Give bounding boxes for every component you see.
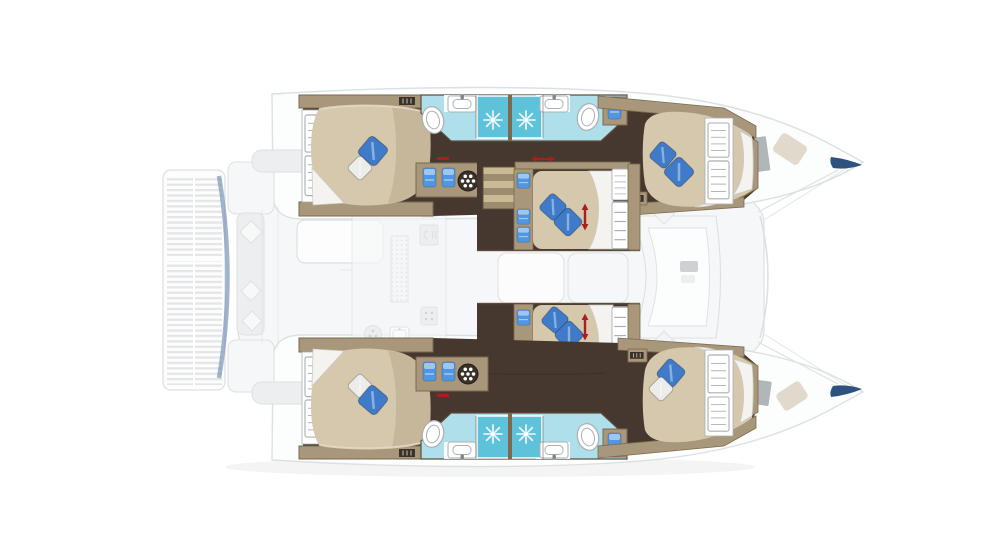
saloon-seat <box>498 253 564 303</box>
cubby-bin-icon <box>517 310 530 325</box>
bathroom-divider <box>508 413 512 459</box>
door-marker <box>437 394 449 397</box>
cubby-bin-icon <box>517 227 530 242</box>
sink-icon <box>540 95 568 113</box>
foredeck-item <box>680 261 698 272</box>
sink-icon <box>540 442 568 460</box>
foredeck-item <box>681 275 695 283</box>
towel-bin-icon <box>423 168 436 187</box>
wardrobe-louver-icon <box>708 161 729 199</box>
port-bathrooms <box>419 95 627 142</box>
shower-drain-starburst-icon <box>484 425 502 443</box>
shower-drain-starburst-icon <box>484 111 502 129</box>
starboard-bathrooms <box>419 413 627 460</box>
galley-hatch-icon <box>421 307 437 325</box>
catamaran-floor-plan <box>0 0 1007 556</box>
shower-drain-starburst-icon <box>517 425 535 443</box>
louver-door-icon <box>612 169 628 200</box>
vent-grille-icon <box>399 97 415 105</box>
vent-grille-icon <box>630 352 644 359</box>
starboard-hull-interior <box>299 338 758 460</box>
wardrobe-louver-icon <box>708 355 729 393</box>
starboard-corridor-cabinet <box>416 357 488 397</box>
fan-hatch-icon <box>458 171 478 191</box>
shower-drain-starburst-icon <box>517 111 535 129</box>
cubby-bin-icon <box>517 173 530 188</box>
port-midship-cabin <box>477 156 640 251</box>
saloon-table-area <box>568 253 628 303</box>
towel-bin-icon <box>442 362 455 381</box>
fan-hatch-icon <box>458 364 478 384</box>
sink-icon <box>448 442 476 460</box>
door-marker <box>437 157 449 160</box>
galley-mat <box>391 236 408 302</box>
wardrobe-louver-icon <box>708 397 729 431</box>
bathroom-divider <box>508 95 512 141</box>
floor-plan-canvas <box>0 0 1007 556</box>
sink-icon <box>448 95 476 113</box>
louver-door-icon <box>612 202 628 249</box>
towel-bin-icon <box>442 168 455 187</box>
galley-stove-icon <box>420 225 438 245</box>
stairs-icon <box>483 167 515 209</box>
cubby-bin-icon <box>517 209 530 224</box>
wardrobe-louver-icon <box>708 123 729 157</box>
towel-bin-icon <box>423 362 436 381</box>
vent-grille-icon <box>399 449 415 457</box>
